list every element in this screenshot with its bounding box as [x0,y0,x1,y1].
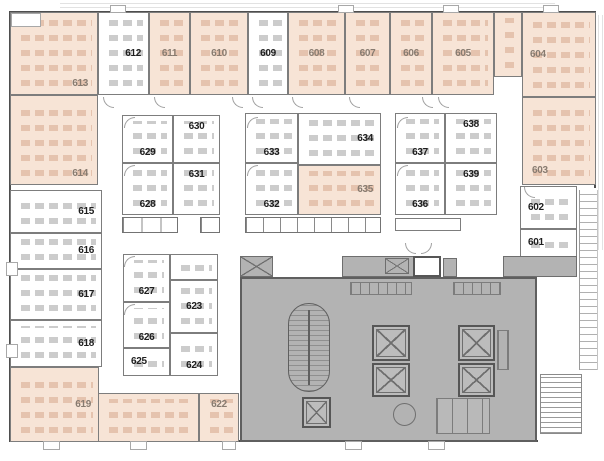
room-number: 624 [171,361,217,371]
restroom-stalls [436,398,490,434]
room-number: 636 [396,200,444,210]
room-number: 630 [174,122,219,132]
room-number: 603 [532,166,548,176]
room-number: 615 [78,207,94,217]
room-number: 625 [131,357,147,367]
door-arc [421,243,432,254]
room-number: 605 [433,13,493,94]
room-number: 613 [72,79,88,89]
column [222,441,236,450]
room-625: 625 [123,348,170,376]
column [543,5,559,13]
column [345,441,362,450]
door-arc [232,97,243,108]
room-number: 626 [124,333,169,343]
room-615: 615 [10,190,102,233]
elevator-shaft [372,363,410,397]
room-618: 618 [10,320,102,367]
room-area [395,218,461,231]
room-number: 618 [78,339,94,349]
room-619: 619 [10,367,99,442]
door-arc [154,97,165,108]
door-arc [252,97,263,108]
room-631: 631 [173,163,220,215]
room-number: 627 [124,287,169,297]
room-606: 606 [390,12,432,95]
room-616: 616 [10,233,102,269]
room-number: 635 [357,185,373,195]
stall-row [122,217,178,233]
room-number: 622 [200,400,238,410]
exterior-line [598,15,599,250]
room-number: 610 [191,13,247,94]
elevator-shaft [458,363,495,397]
door-arc [405,243,416,254]
room-603: 603 [522,97,596,185]
elevator-shaft [372,325,410,361]
room-number: 604 [530,50,546,60]
room-607: 607 [345,12,390,95]
core-shelving [453,282,501,295]
door-arc [438,97,449,108]
room-number: 614 [72,169,88,179]
core-shelving [350,282,412,295]
stall-row [200,217,220,233]
room-608: 608 [288,12,345,95]
room-605: 605 [432,12,494,95]
room-number: 634 [357,134,373,144]
room-number: 628 [123,200,172,210]
door-arc [422,97,433,108]
column [6,344,18,358]
room-609: 609 [248,12,288,95]
room-number: 606 [391,13,431,94]
core-shelving [497,330,509,370]
room-number: 619 [75,400,91,410]
room-number: 609 [249,13,287,94]
room-604: 604 [522,12,596,97]
room-638: 638 [445,113,497,163]
room-number: 629 [123,148,172,158]
room-number: 601 [528,238,544,248]
stall-row [245,217,381,233]
elevator-shaft [458,325,495,361]
floor-plan-canvas: 6136126116106096086076066056046036026016… [0,0,604,461]
column [43,441,60,450]
room-number: 611 [150,13,189,94]
column [443,5,459,13]
room-622: 622 [199,393,239,442]
room-623: 623 [170,280,218,333]
room-number: 616 [78,246,94,256]
room-614: 614 [10,95,98,185]
room-number: 632 [246,200,297,210]
column [338,5,354,13]
room-624: 624 [170,333,218,376]
exterior-line [60,3,555,4]
vestibule [413,256,441,277]
core-stair-oval [288,303,330,392]
shaft-vent [240,256,273,277]
exterior-line [602,15,603,250]
shaft-vent [385,258,409,274]
column [130,441,147,450]
room-number: 631 [174,170,219,180]
exterior-stair [540,374,582,434]
room-number: 608 [289,13,344,94]
elevator-shaft [302,397,331,428]
room-630: 630 [173,115,220,163]
room-number: 602 [528,203,544,213]
room-612: 612 [98,12,149,95]
column [11,13,41,27]
room-number: 617 [78,290,94,300]
room-639: 639 [445,163,497,215]
door-arc [103,97,114,108]
room-area [494,12,522,77]
room-number: 623 [171,281,217,332]
room-number: 637 [396,148,444,158]
room-610: 610 [190,12,248,95]
door-arc [349,97,360,108]
room-area [98,393,199,442]
balcony-railing [579,190,598,370]
service-strip [503,256,577,277]
core-table [393,403,416,426]
room-number: 638 [446,120,496,130]
room-617: 617 [10,269,102,320]
room-number: 639 [446,170,496,180]
room-611: 611 [149,12,190,95]
room-number: 612 [125,49,141,59]
column [6,262,18,276]
column [110,5,126,13]
door-arc [292,97,303,108]
room-number: 633 [246,148,297,158]
room-634: 634 [298,113,381,165]
room-area [170,254,218,280]
service-box [443,258,457,277]
room-635: 635 [298,165,381,215]
exterior-line [60,7,555,8]
room-number: 607 [346,13,389,94]
room-601: 601 [520,229,577,257]
column [428,441,445,450]
